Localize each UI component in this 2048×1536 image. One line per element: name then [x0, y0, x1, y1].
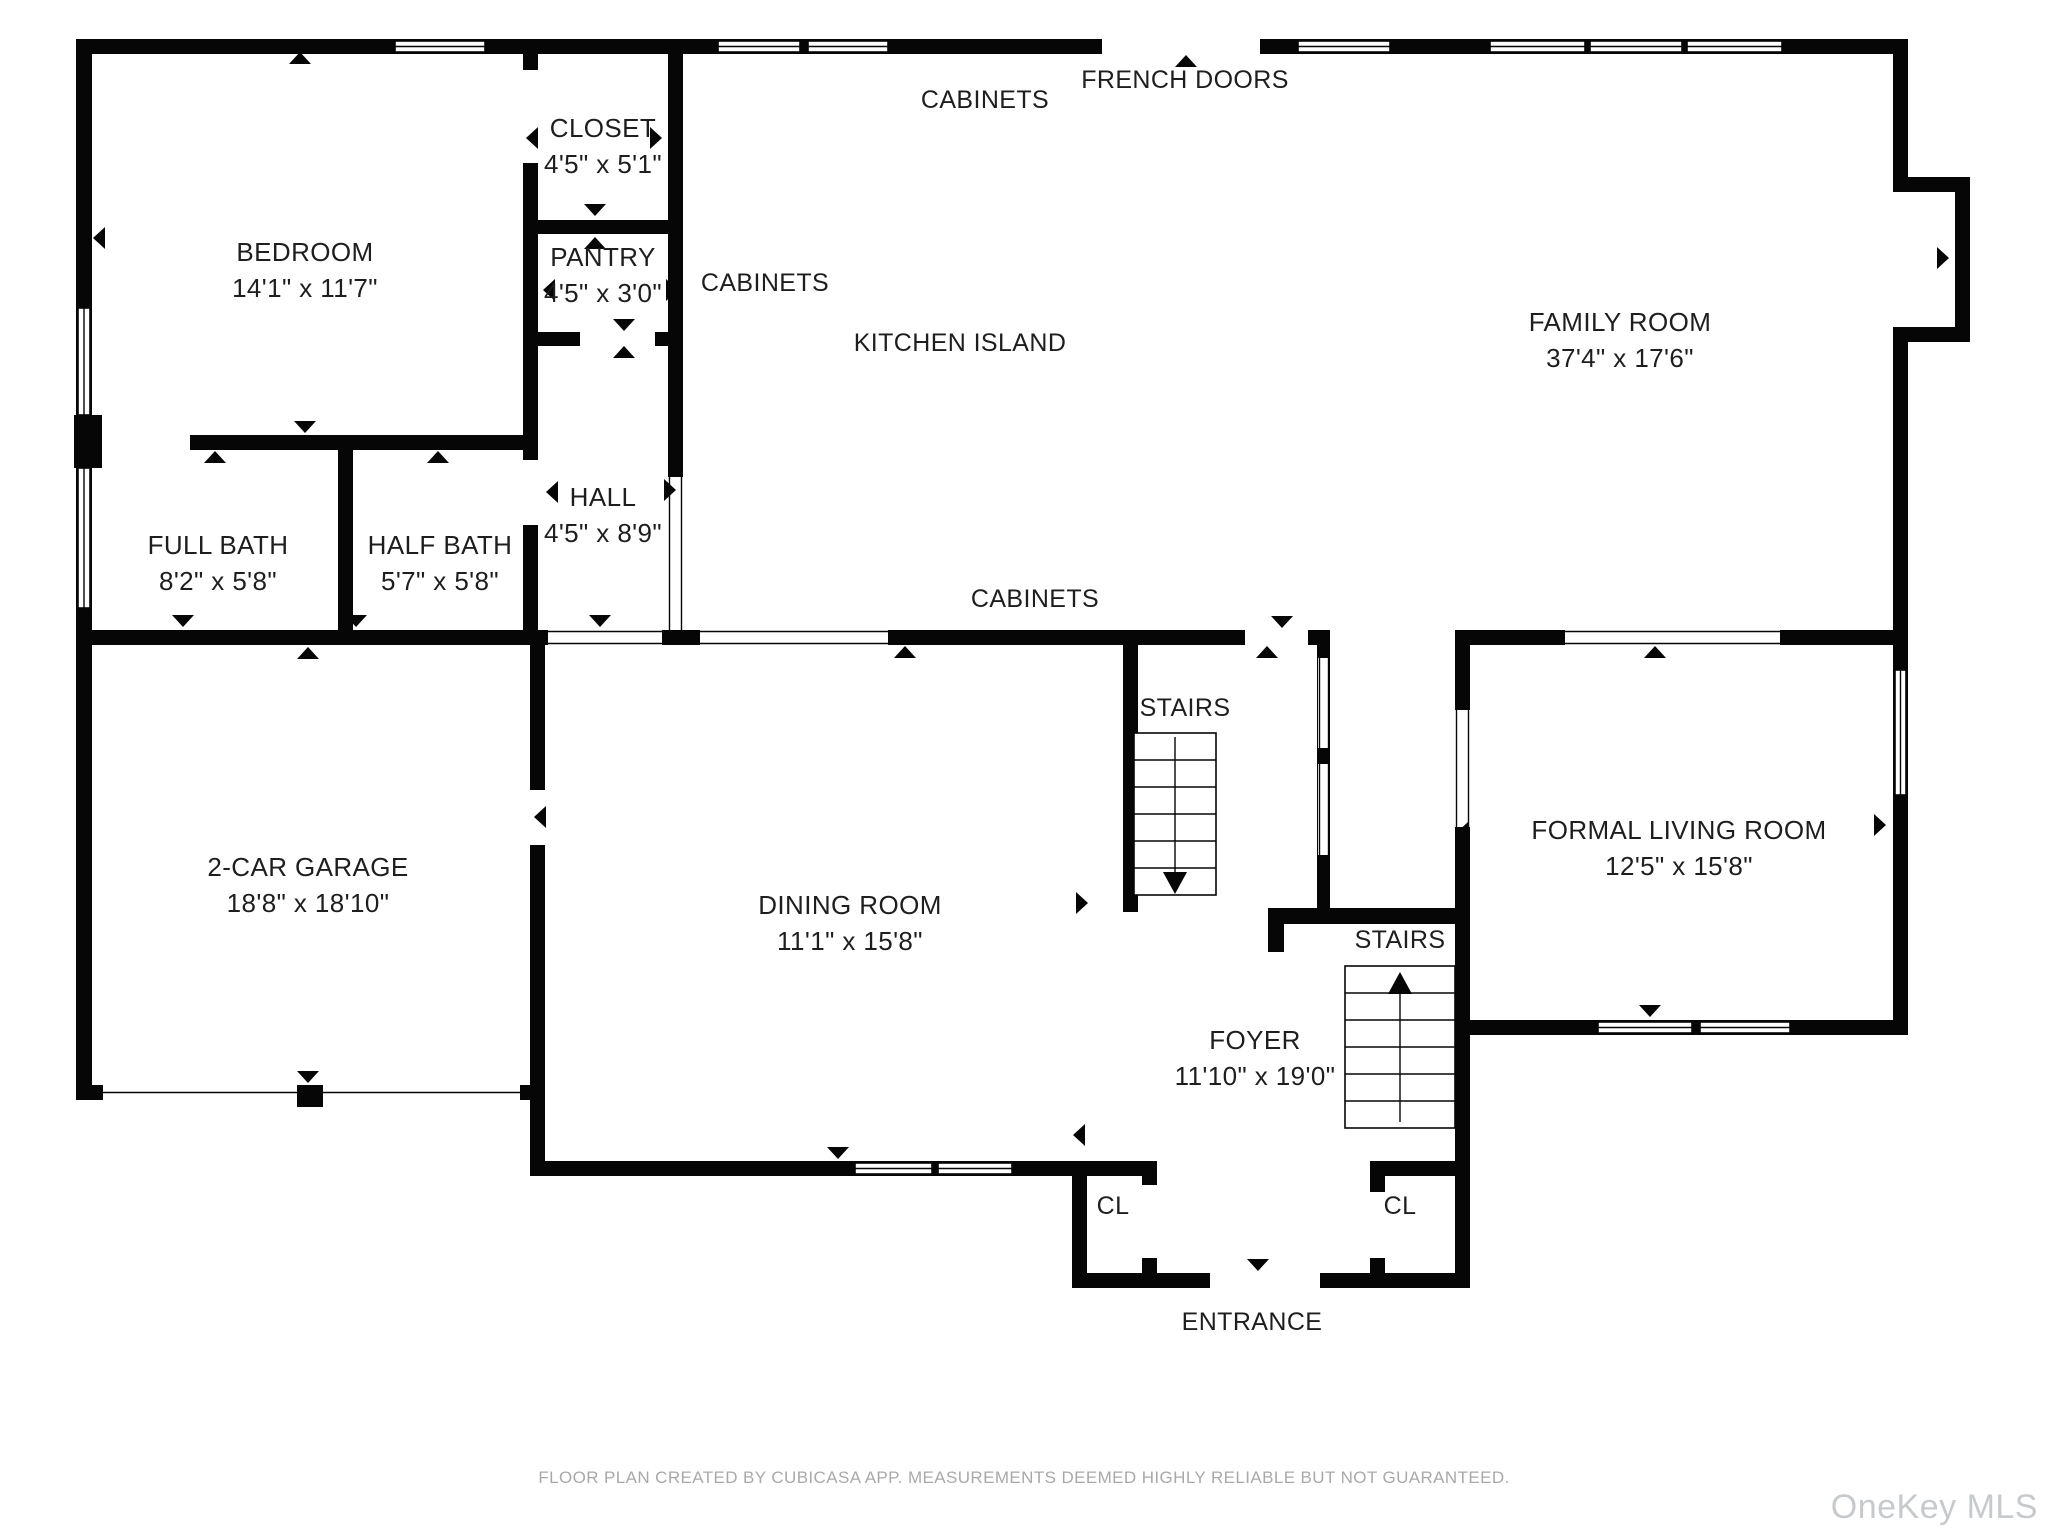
room-dims: 4'5" x 3'0": [544, 275, 662, 311]
room-label-garage: 2-CAR GARAGE 18'8" x 18'10": [207, 849, 408, 921]
room-name: FOYER: [1175, 1022, 1336, 1058]
room-label-pantry: PANTRY 4'5" x 3'0": [544, 239, 662, 311]
annotation-closet-right: CL: [1384, 1189, 1417, 1223]
room-dims: 4'5" x 8'9": [544, 515, 662, 551]
room-name: CLOSET: [544, 110, 662, 146]
room-dims: 18'8" x 18'10": [207, 885, 408, 921]
room-dims: 11'10" x 19'0": [1175, 1058, 1336, 1094]
room-dims: 8'2" x 5'8": [148, 563, 289, 599]
room-name: DINING ROOM: [758, 887, 942, 923]
room-label-half-bath: HALF BATH 5'7" x 5'8": [368, 527, 513, 599]
stairs-up-symbol: [1345, 966, 1455, 1128]
walls: [74, 39, 1970, 1288]
room-label-foyer: FOYER 11'10" x 19'0": [1175, 1022, 1336, 1094]
room-label-bedroom: BEDROOM 14'1" x 11'7": [232, 234, 378, 306]
stairs-down-symbol: [1134, 733, 1216, 895]
room-name: HALL: [544, 479, 662, 515]
room-dims: 4'5" x 5'1": [544, 146, 662, 182]
room-name: FULL BATH: [148, 527, 289, 563]
annotation-cabinets-island: CABINETS: [971, 582, 1099, 616]
room-name: FORMAL LIVING ROOM: [1531, 812, 1826, 848]
room-name: HALF BATH: [368, 527, 513, 563]
room-dims: 12'5" x 15'8": [1531, 848, 1826, 884]
annotation-stairs-up: STAIRS: [1355, 923, 1446, 957]
footer-disclaimer: FLOOR PLAN CREATED BY CUBICASA APP. MEAS…: [538, 1468, 1509, 1488]
annotation-entrance: ENTRANCE: [1182, 1305, 1323, 1339]
room-name: 2-CAR GARAGE: [207, 849, 408, 885]
floor-plan-drawing: [0, 0, 2048, 1536]
room-label-family-room: FAMILY ROOM 37'4" x 17'6": [1529, 304, 1712, 376]
annotation-cabinets-kitchen: CABINETS: [701, 266, 829, 300]
room-dims: 5'7" x 5'8": [368, 563, 513, 599]
annotation-cabinets-top: CABINETS: [921, 83, 1049, 117]
room-label-closet: CLOSET 4'5" x 5'1": [544, 110, 662, 182]
floor-plan-page: BEDROOM 14'1" x 11'7" CLOSET 4'5" x 5'1"…: [0, 0, 2048, 1536]
watermark-onekey-mls: OneKey MLS: [1831, 1488, 2038, 1527]
annotation-kitchen-island: KITCHEN ISLAND: [854, 326, 1067, 360]
room-name: BEDROOM: [232, 234, 378, 270]
room-dims: 37'4" x 17'6": [1529, 340, 1712, 376]
room-dims: 11'1" x 15'8": [758, 923, 942, 959]
annotation-french-doors: FRENCH DOORS: [1081, 63, 1289, 97]
room-label-hall: HALL 4'5" x 8'9": [544, 479, 662, 551]
annotation-closet-left: CL: [1097, 1189, 1130, 1223]
room-label-formal-living-room: FORMAL LIVING ROOM 12'5" x 15'8": [1531, 812, 1826, 884]
annotation-stairs-down: STAIRS: [1140, 691, 1231, 725]
room-dims: 14'1" x 11'7": [232, 270, 378, 306]
room-label-full-bath: FULL BATH 8'2" x 5'8": [148, 527, 289, 599]
room-label-dining-room: DINING ROOM 11'1" x 15'8": [758, 887, 942, 959]
room-name: FAMILY ROOM: [1529, 304, 1712, 340]
room-name: PANTRY: [544, 239, 662, 275]
